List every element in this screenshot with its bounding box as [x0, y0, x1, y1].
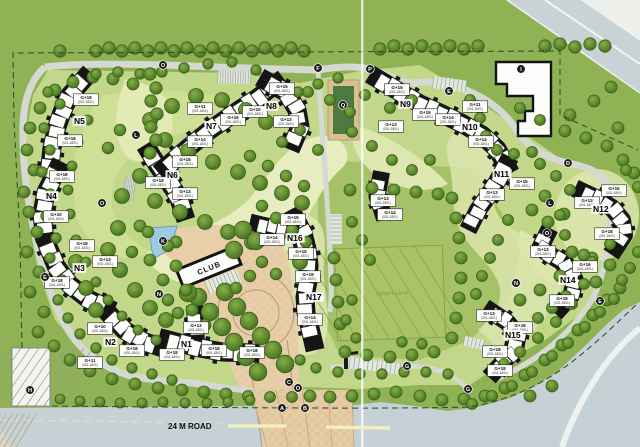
- svg-text:(001-1801): (001-1801): [375, 201, 391, 205]
- svg-text:N6: N6: [167, 170, 178, 180]
- svg-text:(001-1801): (001-1801): [49, 283, 65, 287]
- svg-text:(001-1801): (001-1801): [278, 122, 294, 126]
- svg-text:O: O: [545, 231, 550, 237]
- svg-text:(001-1801): (001-1801): [302, 320, 318, 324]
- svg-text:(001-1801): (001-1801): [206, 351, 222, 355]
- svg-text:L: L: [134, 133, 138, 139]
- svg-text:O: O: [296, 386, 301, 392]
- svg-text:(001-1801): (001-1801): [440, 120, 456, 124]
- svg-text:(001-1801): (001-1801): [177, 194, 193, 198]
- svg-text:N14: N14: [560, 275, 576, 285]
- svg-text:N15: N15: [505, 330, 521, 340]
- svg-text:P: P: [368, 67, 372, 73]
- svg-text:A: A: [280, 406, 284, 412]
- svg-text:N2: N2: [105, 337, 116, 347]
- svg-text:N: N: [157, 292, 161, 298]
- svg-text:(001-1801): (001-1801): [514, 184, 530, 188]
- svg-text:(001-1801): (001-1801): [48, 217, 64, 221]
- svg-text:(001-1801): (001-1801): [599, 234, 615, 238]
- svg-text:(001-1801): (001-1801): [577, 267, 593, 271]
- svg-text:E: E: [447, 89, 451, 95]
- svg-text:G: G: [466, 387, 470, 393]
- svg-text:H: H: [28, 388, 32, 394]
- svg-text:(001-1801): (001-1801): [487, 352, 503, 356]
- svg-text:B: B: [303, 406, 307, 412]
- svg-text:(001-1801): (001-1801): [467, 107, 483, 111]
- svg-text:(001-1801): (001-1801): [484, 195, 500, 199]
- svg-text:E: E: [43, 275, 47, 281]
- svg-text:N16: N16: [287, 233, 303, 243]
- svg-text:(001-1801): (001-1801): [82, 363, 98, 367]
- svg-text:(001-1801): (001-1801): [164, 355, 180, 359]
- svg-text:(001-1801): (001-1801): [177, 162, 193, 166]
- svg-text:N1: N1: [181, 339, 192, 349]
- svg-text:E: E: [598, 299, 602, 305]
- svg-text:(001-1801): (001-1801): [274, 89, 290, 93]
- svg-text:N: N: [514, 281, 518, 287]
- svg-text:Other's Land: Other's Land: [376, 290, 408, 297]
- svg-text:(001-1801): (001-1801): [150, 183, 166, 187]
- svg-text:(001-1801): (001-1801): [481, 316, 497, 320]
- svg-text:(001-1801): (001-1801): [247, 112, 263, 116]
- svg-text:(001-1801): (001-1801): [417, 115, 433, 119]
- svg-text:(001-1801): (001-1801): [293, 254, 309, 258]
- svg-text:(001-1801): (001-1801): [244, 353, 260, 357]
- svg-text:(001-1801): (001-1801): [54, 177, 70, 181]
- svg-text:C: C: [287, 380, 291, 386]
- svg-text:F: F: [316, 66, 320, 72]
- svg-text:(001-1801): (001-1801): [74, 246, 90, 250]
- svg-text:(001-1801): (001-1801): [300, 277, 316, 281]
- svg-text:N3: N3: [74, 263, 85, 273]
- svg-text:N7: N7: [206, 121, 217, 131]
- svg-text:(001-1801): (001-1801): [554, 301, 570, 305]
- svg-text:K: K: [161, 239, 165, 245]
- svg-text:(001-1801): (001-1801): [492, 371, 508, 375]
- svg-text:(001-1801): (001-1801): [535, 252, 551, 256]
- svg-text:(001-1801): (001-1801): [285, 220, 301, 224]
- svg-text:N17: N17: [306, 292, 322, 302]
- svg-text:N10: N10: [462, 122, 478, 132]
- svg-text:(001-1801): (001-1801): [192, 142, 208, 146]
- svg-text:N12: N12: [593, 204, 609, 214]
- svg-text:(001-1801): (001-1801): [124, 351, 140, 355]
- svg-text:(001-1801): (001-1801): [92, 329, 108, 333]
- svg-text:Q: Q: [341, 103, 346, 109]
- svg-text:N4: N4: [46, 191, 57, 201]
- svg-text:N8: N8: [266, 101, 277, 111]
- svg-text:(001-1801): (001-1801): [78, 100, 94, 104]
- svg-text:(001-1801): (001-1801): [62, 141, 78, 145]
- svg-text:(001-1801): (001-1801): [383, 127, 399, 131]
- svg-text:O: O: [161, 63, 166, 69]
- svg-text:(001-1801): (001-1801): [192, 109, 208, 113]
- svg-text:N5: N5: [74, 116, 85, 126]
- svg-text:(001-1801): (001-1801): [188, 328, 204, 332]
- svg-text:O: O: [100, 201, 105, 207]
- svg-text:(001-1801): (001-1801): [382, 215, 398, 219]
- svg-text:G: G: [405, 364, 409, 370]
- svg-text:N11: N11: [494, 169, 509, 179]
- svg-text:(001-1801): (001-1801): [606, 191, 622, 195]
- svg-text:(001-1801): (001-1801): [97, 262, 113, 266]
- svg-text:(001-1801): (001-1801): [225, 120, 241, 124]
- svg-text:(001-1801): (001-1801): [473, 142, 489, 146]
- svg-text:24 M ROAD: 24 M ROAD: [168, 422, 212, 431]
- svg-text:D: D: [566, 161, 570, 167]
- svg-text:(001-1801): (001-1801): [389, 90, 405, 94]
- svg-text:(001-1801): (001-1801): [264, 240, 280, 244]
- svg-text:N9: N9: [400, 99, 411, 109]
- svg-text:L: L: [548, 201, 552, 207]
